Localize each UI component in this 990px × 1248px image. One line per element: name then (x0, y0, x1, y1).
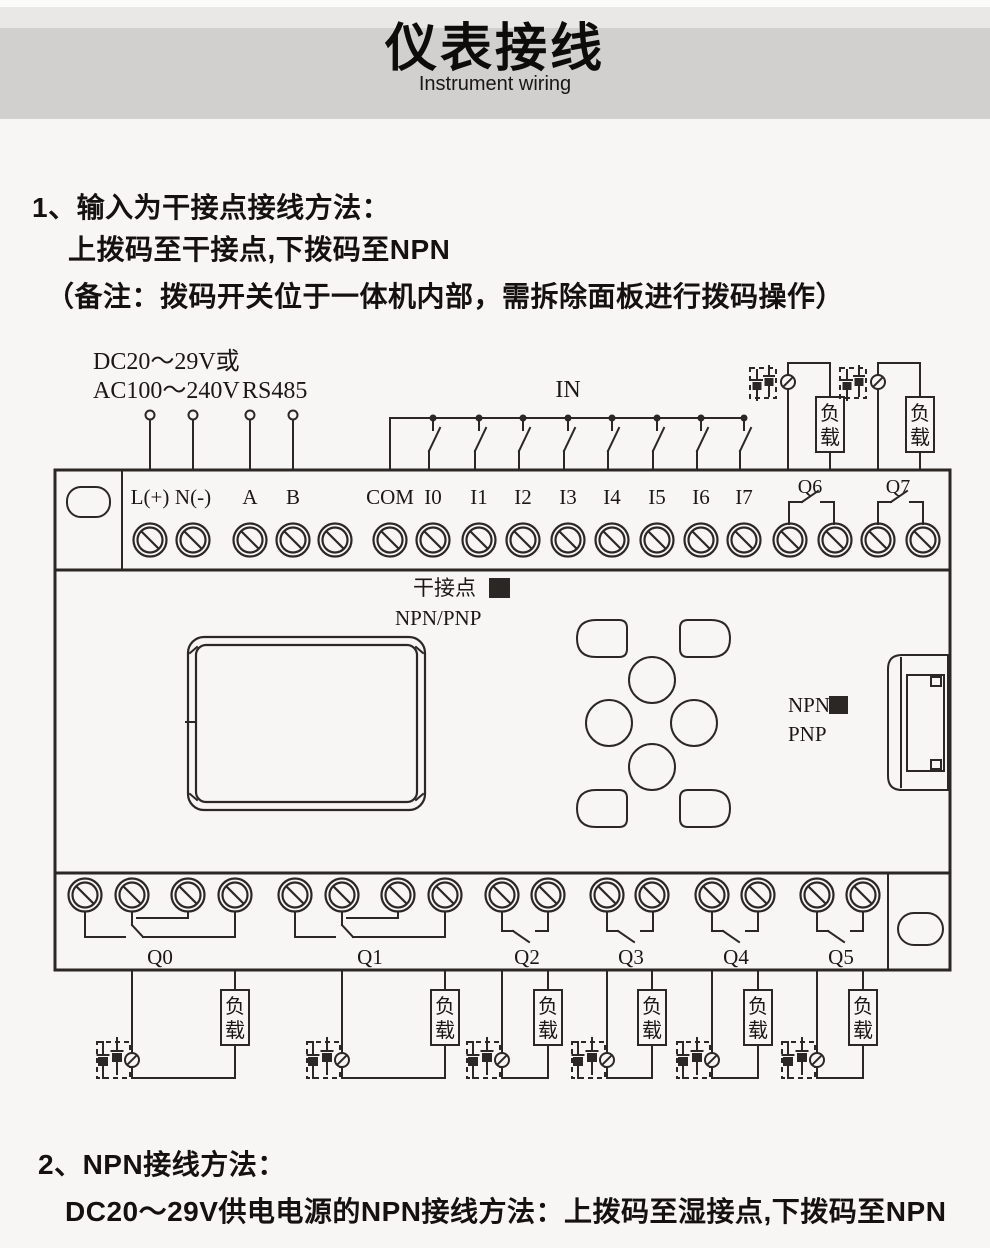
input-bus (390, 415, 751, 471)
ac-source-icon (495, 1053, 509, 1067)
load-label: 载 (435, 1019, 455, 1042)
terminal-label: COM (366, 485, 414, 509)
suppressor-icon (764, 366, 774, 396)
keypad (577, 620, 730, 827)
ac-source-icon (810, 1053, 824, 1067)
terminal-label: I1 (470, 485, 488, 509)
suppressor-icon (692, 1038, 703, 1074)
relay-label: Q6 (798, 476, 822, 498)
power-input-wires (146, 411, 298, 471)
dry-contact-label: 干接点 (413, 576, 476, 600)
load-label: 负 (538, 995, 558, 1018)
terminal-label: I7 (735, 485, 753, 509)
load-label: 载 (910, 426, 930, 449)
q4-load-circuit: 负 载 (677, 970, 772, 1078)
rs485-label: RS485 (242, 378, 307, 404)
bottom-relay-contacts (85, 912, 863, 942)
key-up (629, 657, 675, 703)
npn-label: NPN (788, 693, 830, 717)
terminal-label: I3 (559, 485, 577, 509)
load-label: 负 (820, 402, 840, 425)
relay-label: Q2 (514, 945, 540, 969)
section2-line2: DC20～29V供电电源的NPN接线方法：上拨码至湿接点,下拨码至NPN (65, 1190, 946, 1230)
q5-load-circuit: 负 载 (782, 970, 877, 1078)
suppressor-icon (797, 1038, 808, 1074)
relay-label: Q4 (723, 945, 749, 969)
expansion-port (888, 655, 948, 790)
q7-load-circuit: 负 载 (840, 363, 934, 470)
in-label: IN (555, 377, 580, 403)
terminal-label: I6 (692, 485, 710, 509)
top-terminal-screws (134, 524, 940, 557)
load-label: 负 (748, 995, 768, 1018)
pnp-label: PNP (788, 722, 827, 746)
power-label-line2: AC100～240V (93, 378, 240, 404)
load-label: 负 (642, 995, 662, 1018)
bottom-terminal-screws (69, 879, 880, 912)
load-label: 载 (748, 1019, 768, 1042)
relay-label: Q5 (828, 945, 854, 969)
top-terminal-labels: L(+) N(-) A B COM I0 I1 I2 I3 I4 I5 I6 I… (131, 476, 911, 509)
load-label: 载 (853, 1019, 873, 1042)
wiring-diagram: DC20～29V或 AC100～240V RS485 IN 负 载 (0, 0, 990, 1248)
suppressor-icon (112, 1038, 123, 1074)
ac-source-icon (600, 1053, 614, 1067)
load-label: 负 (853, 995, 873, 1018)
key-down (629, 744, 675, 790)
suppressor-icon (783, 1042, 794, 1078)
terminal-label: I4 (603, 485, 621, 509)
key-bottom-right (680, 790, 730, 827)
load-label: 负 (225, 995, 245, 1018)
load-label: 载 (225, 1019, 245, 1042)
q2-load-circuit: 负 载 (467, 970, 562, 1078)
terminal-label: B (286, 485, 300, 509)
dip-switch-square-icon (829, 696, 848, 714)
page: 仪表接线 Instrument wiring 1、输入为干接点接线方法： 上拨码… (0, 0, 990, 1248)
terminal-label: N(-) (175, 485, 211, 509)
q3-load-circuit: 负 载 (572, 970, 666, 1078)
suppressor-icon (842, 370, 852, 400)
load-label: 载 (820, 426, 840, 449)
load-label: 载 (642, 1019, 662, 1042)
key-right (671, 700, 717, 746)
suppressor-icon (98, 1042, 109, 1078)
lcd-display (186, 637, 425, 810)
suppressor-icon (308, 1042, 319, 1078)
mounting-hole (898, 913, 943, 945)
dip-switch-square-icon (489, 578, 510, 598)
suppressor-icon (468, 1042, 479, 1078)
q0-load-circuit: 负 载 (97, 970, 249, 1078)
terminal-label: I0 (424, 485, 442, 509)
bottom-relay-labels: Q0 Q1 Q2 Q3 Q4 Q5 (147, 945, 854, 969)
load-label: 负 (435, 995, 455, 1018)
q1-load-circuit: 负 载 (307, 970, 459, 1078)
load-label: 载 (538, 1019, 558, 1042)
ac-source-icon (335, 1053, 349, 1067)
suppressor-icon (322, 1038, 333, 1074)
key-top-right (680, 620, 730, 657)
terminal-label: A (242, 485, 258, 509)
terminal-label: L(+) (131, 485, 170, 509)
q6-load-circuit: 负 载 (750, 363, 844, 470)
terminal-label: I2 (514, 485, 532, 509)
ac-source-icon (705, 1053, 719, 1067)
key-bottom-left (577, 790, 627, 827)
suppressor-icon (587, 1038, 598, 1074)
suppressor-icon (573, 1042, 584, 1078)
relay-label: Q0 (147, 945, 173, 969)
power-label-line1: DC20～29V或 (93, 348, 240, 375)
suppressor-icon (482, 1038, 493, 1074)
mounting-hole (67, 487, 110, 517)
suppressor-icon (678, 1042, 689, 1078)
ac-source-icon (781, 375, 795, 389)
key-left (586, 700, 632, 746)
relay-label: Q7 (886, 476, 910, 498)
relay-label: Q3 (618, 945, 644, 969)
suppressor-icon (752, 370, 762, 400)
relay-label: Q1 (357, 945, 383, 969)
section2-heading: 2、NPN接线方法： (38, 1143, 286, 1183)
suppressor-icon (854, 366, 864, 396)
ac-source-icon (125, 1053, 139, 1067)
key-top-left (577, 620, 627, 657)
ac-source-icon (871, 375, 885, 389)
load-label: 负 (910, 402, 930, 425)
terminal-label: I5 (648, 485, 666, 509)
npn-pnp-label: NPN/PNP (395, 606, 481, 630)
